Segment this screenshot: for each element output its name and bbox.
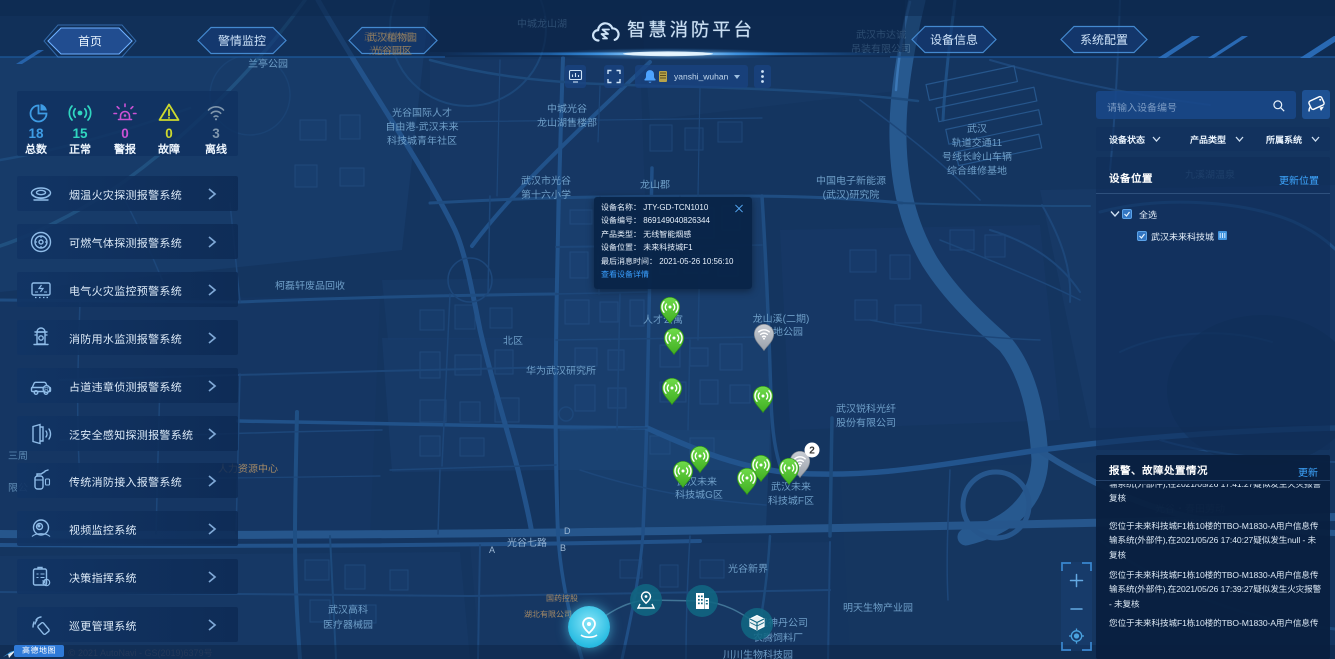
svg-text:2: 2	[809, 442, 815, 457]
